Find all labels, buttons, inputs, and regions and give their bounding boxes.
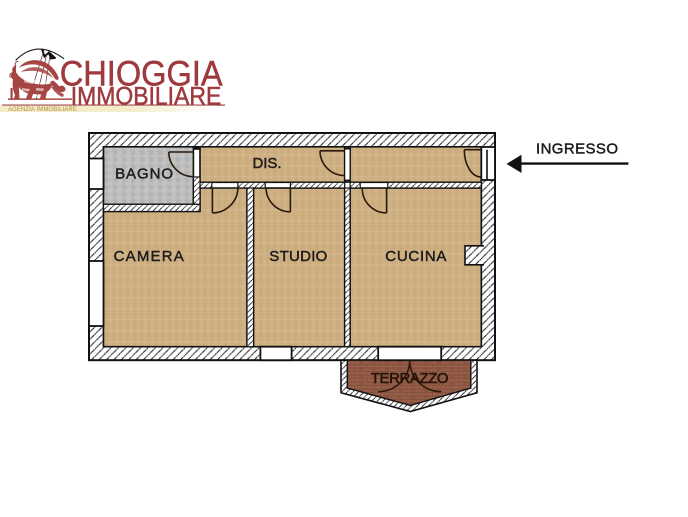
svg-text:CUCINA: CUCINA [385, 248, 446, 265]
svg-text:INGRESSO: INGRESSO [536, 141, 618, 158]
svg-text:CAMERA: CAMERA [114, 248, 184, 265]
svg-text:AGENZIA IMMOBILIARE: AGENZIA IMMOBILIARE [8, 107, 77, 113]
svg-text:TERRAZZO: TERRAZZO [371, 370, 449, 387]
svg-text:IMMOBILIARE: IMMOBILIARE [71, 83, 222, 111]
svg-text:STUDIO: STUDIO [269, 248, 327, 265]
svg-text:BAGNO: BAGNO [115, 166, 173, 183]
svg-text:DIS.: DIS. [253, 155, 282, 172]
